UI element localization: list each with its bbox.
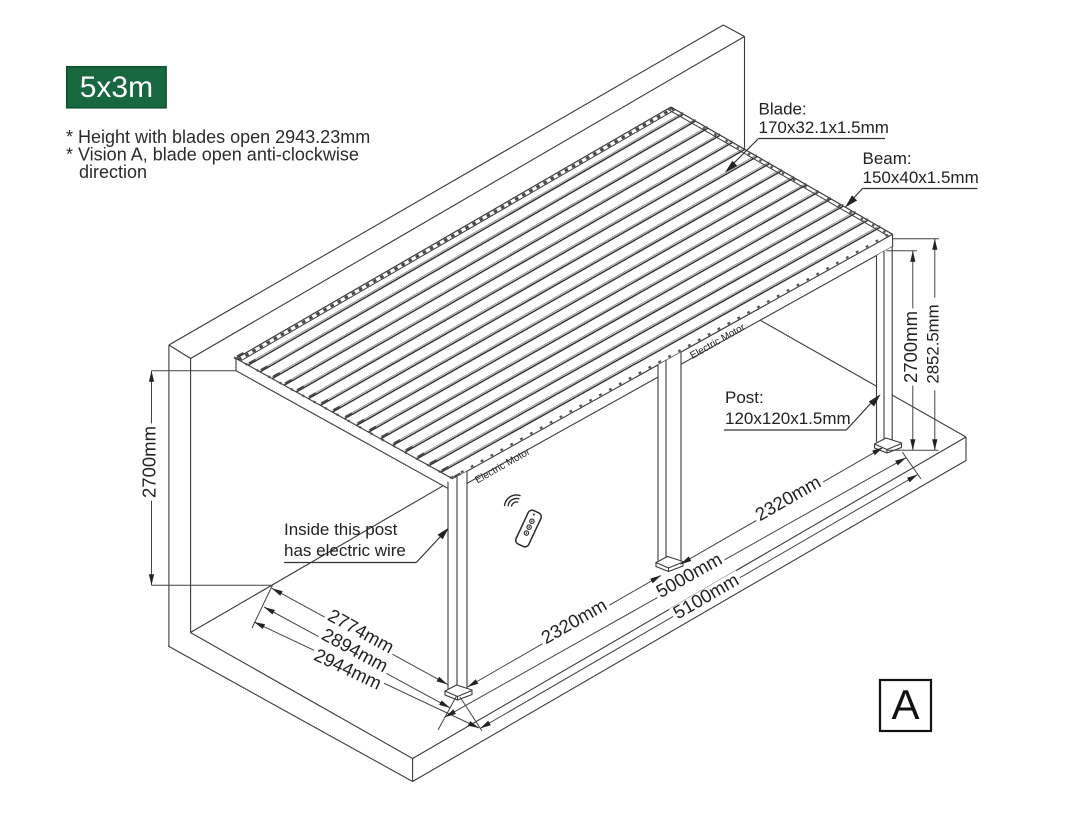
svg-text:120x120x1.5mm: 120x120x1.5mm [725, 409, 851, 428]
svg-text:150x40x1.5mm: 150x40x1.5mm [863, 168, 979, 187]
svg-text:Beam:: Beam: [863, 149, 912, 168]
svg-text:Inside this post: Inside this post [284, 520, 398, 539]
svg-text:direction: direction [79, 162, 147, 182]
svg-text:Post:: Post: [725, 388, 764, 407]
svg-text:A: A [891, 681, 919, 728]
svg-text:170x32.1x1.5mm: 170x32.1x1.5mm [759, 118, 889, 137]
svg-text:Blade:: Blade: [759, 100, 807, 119]
svg-text:2700mm: 2700mm [900, 311, 921, 383]
svg-text:2852.5mm: 2852.5mm [924, 304, 943, 383]
svg-text:2700mm: 2700mm [139, 426, 160, 498]
svg-text:has electric wire: has electric wire [284, 541, 406, 560]
svg-text:5x3m: 5x3m [80, 71, 153, 104]
